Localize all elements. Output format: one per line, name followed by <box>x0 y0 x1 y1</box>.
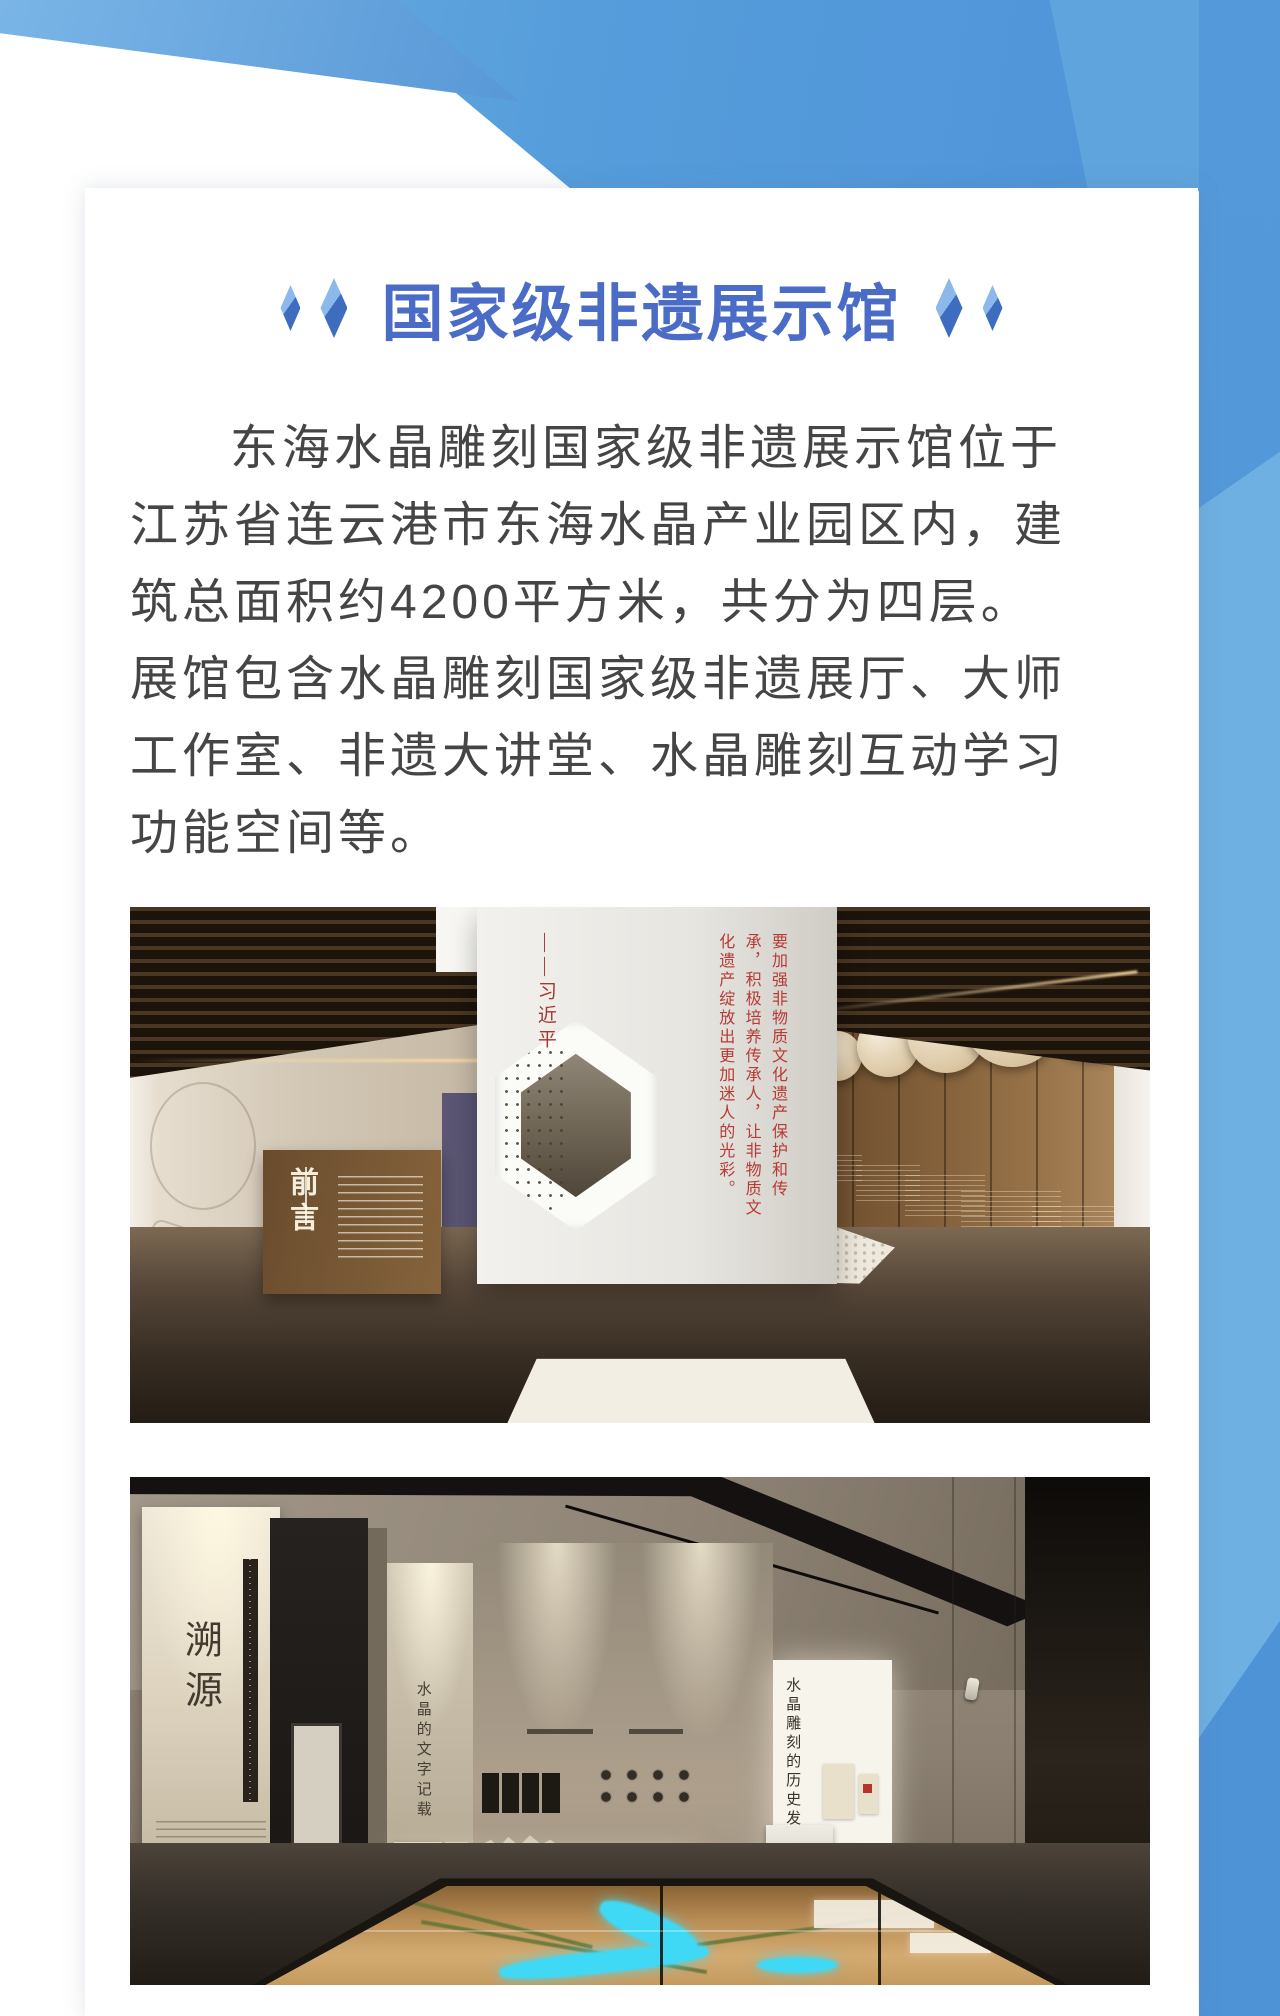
thumbnail <box>502 1773 519 1813</box>
intro-line: 展馆包含水晶雕刻国家级非遗展厅、大师 <box>130 641 1150 718</box>
article-page: 国家级非遗展示馆 东海水晶雕刻国家级非遗展示馆位于 江苏省连云港市东海水晶产业园… <box>0 0 1280 2016</box>
intro-line: 工作室、非遗大讲堂、水晶雕刻互动学习 <box>130 718 1150 795</box>
thumbnail <box>482 1773 499 1813</box>
thumbnail <box>542 1773 559 1813</box>
page-title: 国家级非遗展示馆 <box>381 263 901 353</box>
intro-line: 筑总面积约4200平方米，共分为四层。 <box>130 564 1150 641</box>
red-seal <box>863 1784 872 1793</box>
diamond-icon <box>936 278 963 338</box>
origin-panel-ribbon <box>243 1559 258 1802</box>
foreword-title: 前言 <box>280 1167 322 1237</box>
intro-paragraph: 东海水晶雕刻国家级非遗展示馆位于 江苏省连云港市东海水晶产业园区内，建 筑总面积… <box>130 410 1150 872</box>
diamond-icon <box>280 285 300 331</box>
icon-grid <box>593 1764 695 1813</box>
purple-wall-strip <box>442 1093 481 1237</box>
diamond-icon <box>320 278 347 338</box>
intro-line: 功能空间等。 <box>130 795 1150 872</box>
illuminated-floor-pit <box>507 1359 874 1424</box>
foreword-divider <box>305 1167 307 1225</box>
intro-line: 江苏省连云港市东海水晶产业园区内，建 <box>130 487 1150 564</box>
glass-divider <box>878 1886 881 1985</box>
model-pond <box>757 1957 838 1973</box>
photo-entrance-hall[interactable]: 前言 要加强非物质文化遗产保护和传承，积极培养传承人，让非物质文化遗产绽放出更加… <box>130 907 1150 1423</box>
foreword-panel: 前言 <box>263 1150 442 1294</box>
content-card: 国家级非遗展示馆 东海水晶雕刻国家级非遗展示馆位于 江苏省连云港市东海水晶产业园… <box>85 188 1198 2016</box>
origin-panel-title: 溯源 <box>173 1620 228 1720</box>
wall-etching <box>150 1082 256 1210</box>
title-row: 国家级非遗展示馆 <box>85 260 1198 356</box>
records-panel-title: 水晶的文字记载 <box>413 1681 434 1821</box>
quote-signature: ——习近平 <box>530 933 711 1234</box>
photo-history-gallery[interactable]: 溯源 水晶的文字记载 山海经 <box>130 1477 1150 1985</box>
glass-divider <box>660 1886 663 1985</box>
model-river <box>499 1940 710 1984</box>
wall-heading-line <box>527 1729 593 1734</box>
wall-heading-line <box>629 1729 683 1734</box>
intro-line: 东海水晶雕刻国家级非遗展示馆位于 <box>130 410 1150 487</box>
thumbnail <box>522 1773 539 1813</box>
hanging-banner-column: 要加强非物质文化遗产保护和传承，积极培养传承人，让非物质文化遗产绽放出更加迷人的… <box>477 907 837 1284</box>
glass-reflection <box>258 1930 1064 1932</box>
photo-thumbnails <box>482 1773 560 1813</box>
beige-pillar-wall <box>892 1477 1025 1853</box>
exhibit-item <box>859 1774 878 1814</box>
quote-text: 要加强非物质文化遗产保护和传承，积极培养传承人，让非物质文化遗产绽放出更加迷人的… <box>711 933 790 1234</box>
heritage-quote-vertical: 要加强非物质文化遗产保护和传承，积极培养传承人，让非物质文化遗产绽放出更加迷人的… <box>530 933 791 1234</box>
right-blue-band <box>1199 0 1280 2016</box>
cove-light <box>130 1059 497 1062</box>
diamond-icon <box>983 285 1003 331</box>
foreword-text-lines <box>338 1176 424 1260</box>
